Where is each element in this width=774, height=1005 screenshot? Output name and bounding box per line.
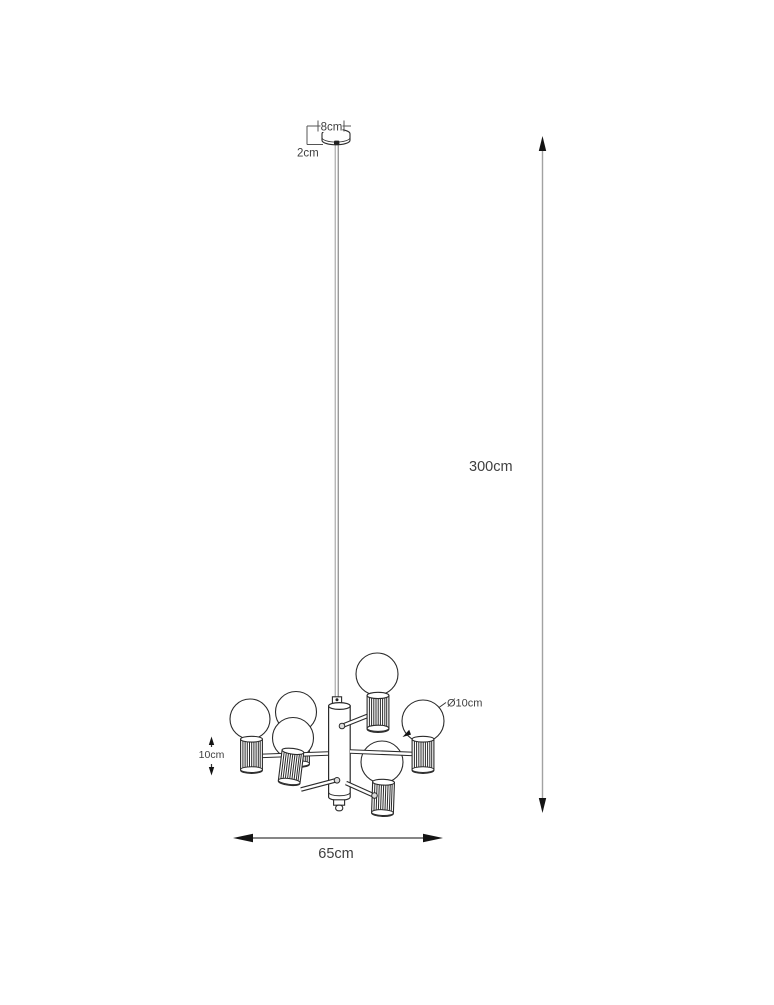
dimension-canopy-height: 2cm xyxy=(297,126,323,160)
arrow-up-icon xyxy=(539,136,546,151)
central-column xyxy=(329,703,351,811)
fixture-width-label: 65cm xyxy=(318,846,353,862)
socket-height-label: 10cm xyxy=(199,749,225,761)
arm-right xyxy=(350,752,414,755)
column-finial-tip xyxy=(336,805,343,811)
small-arrow-down-icon xyxy=(209,767,214,776)
socket-right xyxy=(412,736,434,773)
dimension-canopy-width: 8cm xyxy=(307,119,351,134)
bulb-diameter-label: Ø10cm xyxy=(447,698,482,710)
small-arrow-up-icon xyxy=(209,737,214,746)
arrow-right-icon xyxy=(423,834,443,842)
socket-left xyxy=(241,736,263,773)
bulb-bottom xyxy=(361,741,403,783)
canopy-width-label: 8cm xyxy=(321,122,343,134)
canopy-height-label: 2cm xyxy=(297,148,319,160)
bulb-left xyxy=(230,699,270,739)
suspension-length-label: 300cm xyxy=(469,459,513,475)
chandelier-dimension-drawing: 8cm 2cm 300cm 10cm Ø10cm 65cm xyxy=(0,0,774,1000)
socket-mid-left xyxy=(278,747,304,786)
arrow-left-icon xyxy=(233,834,253,842)
socket-top xyxy=(367,692,389,732)
arrow-down-icon xyxy=(539,798,546,813)
dimension-socket-height: 10cm xyxy=(199,737,225,776)
suspension-cord xyxy=(335,145,338,699)
column-finial xyxy=(334,800,345,805)
canopy-cord-nub xyxy=(334,141,339,145)
dimension-suspension-length: 300cm xyxy=(469,136,546,813)
bulb-top xyxy=(356,653,398,695)
dimension-fixture-width: 65cm xyxy=(233,834,443,862)
diagram-page: 8cm 2cm 300cm 10cm Ø10cm 65cm xyxy=(0,0,774,1000)
bulb-right xyxy=(402,700,444,742)
